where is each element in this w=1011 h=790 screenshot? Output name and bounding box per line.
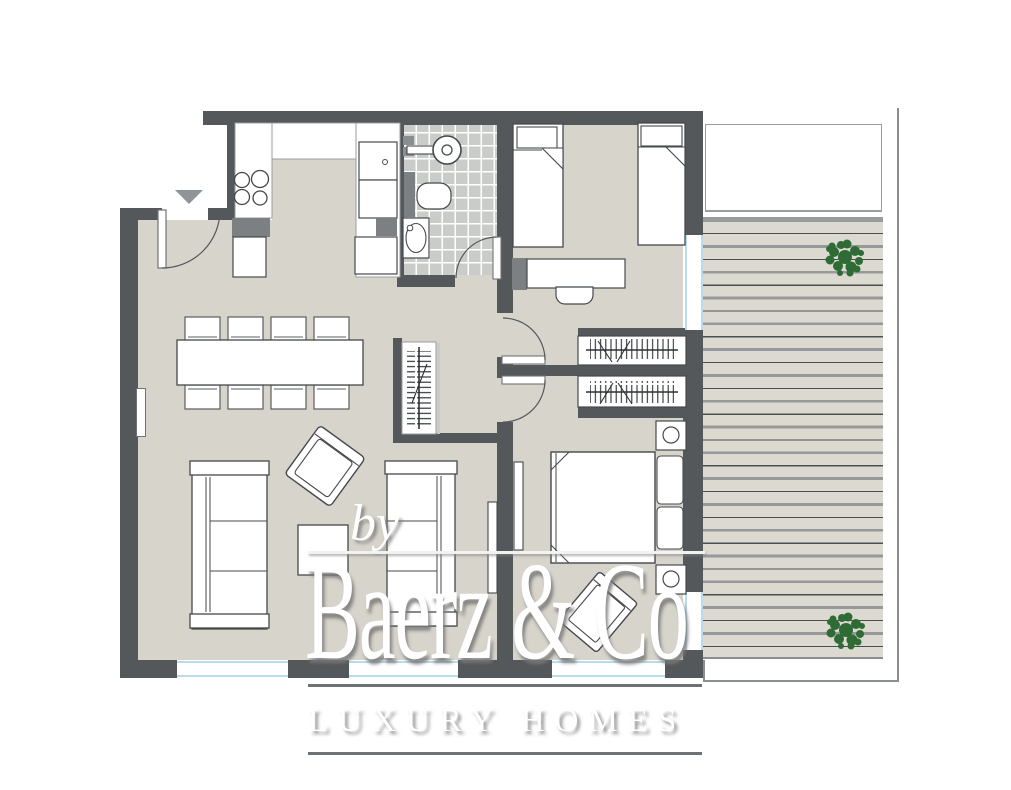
desk-cabinet <box>512 258 527 290</box>
bed-single-1 <box>513 124 563 247</box>
watermark-rule-top <box>308 684 702 687</box>
desk-chair <box>556 287 593 304</box>
watermark-tagline: LUXURY HOMES <box>308 703 686 740</box>
bed-single-2 <box>638 123 685 245</box>
bedroom2-door-leaf <box>502 376 545 384</box>
dining-set-icon <box>177 317 363 409</box>
shower-icon <box>403 136 461 164</box>
entrance-arrow-icon <box>175 190 203 204</box>
plant-icon <box>827 613 866 650</box>
dining-table <box>177 340 363 385</box>
entrance-door-swing-icon <box>162 210 220 268</box>
watermark-rule-bottom <box>308 752 702 755</box>
bedroom2-door-swing-icon <box>503 380 545 422</box>
toilet-icon <box>417 183 451 209</box>
bedroom1-door-swing-icon <box>503 318 545 360</box>
nightstand-1-lamp <box>663 427 679 443</box>
wardrobe-2 <box>578 376 686 407</box>
entrance-door-leaf <box>158 210 166 268</box>
bathroom-door-swing-icon <box>456 237 497 278</box>
wardrobe-1 <box>578 336 686 365</box>
living-closet <box>402 342 440 434</box>
bathroom-door-leaf <box>493 237 501 279</box>
desk <box>527 259 625 288</box>
plant-icon <box>826 240 865 277</box>
sofa-large <box>190 461 269 629</box>
bathroom-cistern <box>404 172 415 217</box>
watermark-brand: Baerz & Co <box>305 542 688 682</box>
sink-icon <box>403 218 429 258</box>
bedroom1-door-leaf <box>502 356 545 364</box>
floor-plan: by Baerz & Co LUXURY HOMES <box>0 0 1011 790</box>
